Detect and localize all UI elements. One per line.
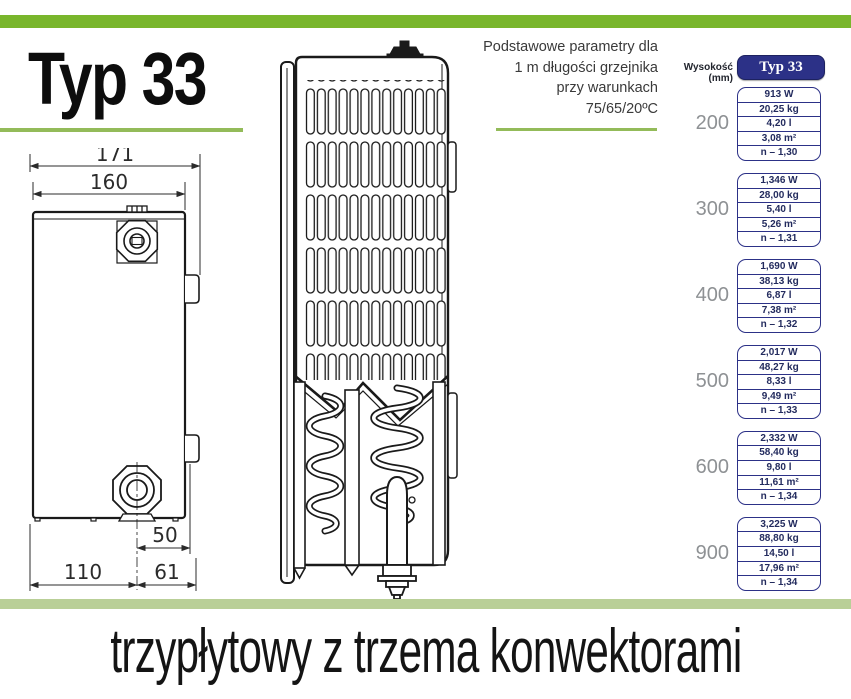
spec-cell: 4,20 l (738, 117, 820, 132)
group-box: 1,690 W38,13 kg6,87 l7,38 m²n – 1,32 (737, 259, 821, 333)
table-header-pill: Typ 33 (737, 55, 825, 80)
spec-cell: 58,40 kg (738, 446, 820, 461)
table-groups: 200 913 W20,25 kg4,20 l3,08 m²n – 1,30 3… (671, 87, 841, 591)
table-group: 300 1,346 W28,00 kg5,40 l5,26 m²n – 1,31 (671, 173, 841, 247)
spec-cell: 913 W (738, 88, 820, 103)
dim-label-160: 160 (90, 170, 128, 194)
spec-cell: 1,690 W (738, 260, 820, 275)
bracket-bottom (185, 435, 199, 462)
side-strip-panel (281, 62, 294, 583)
table-group: 500 2,017 W48,27 kg8,33 l9,49 m²n – 1,33 (671, 345, 841, 419)
title-underline (0, 128, 243, 132)
table-group: 600 2,332 W58,40 kg9,80 l11,61 m²n – 1,3… (671, 431, 841, 505)
front-view-drawing (270, 30, 484, 602)
height-value: 300 (671, 173, 737, 247)
radiator-side-body (33, 206, 199, 521)
group-box: 1,346 W28,00 kg5,40 l5,26 m²n – 1,31 (737, 173, 821, 247)
spec-cell: 9,49 m² (738, 390, 820, 405)
spec-cell: 48,27 kg (738, 361, 820, 376)
height-value: 400 (671, 259, 737, 333)
group-box: 3,225 W88,80 kg14,50 l17,96 m²n – 1,34 (737, 517, 821, 591)
spec-cell: 20,25 kg (738, 103, 820, 118)
dim-label-110: 110 (64, 560, 102, 584)
air-vent-icon (127, 206, 147, 212)
table-group: 900 3,225 W88,80 kg14,50 l17,96 m²n – 1,… (671, 517, 841, 591)
spec-cell: 88,80 kg (738, 532, 820, 547)
group-box: 2,332 W58,40 kg9,80 l11,61 m²n – 1,34 (737, 431, 821, 505)
spec-cell: 2,332 W (738, 432, 820, 447)
spec-cell: n – 1,33 (738, 404, 820, 418)
spec-cell: n – 1,34 (738, 576, 820, 590)
spec-cell: 28,00 kg (738, 189, 820, 204)
group-box: 913 W20,25 kg4,20 l3,08 m²n – 1,30 (737, 87, 821, 161)
top-valve-icon (117, 221, 158, 263)
datasheet-page: Typ 33 Podstawowe parametry dla 1 m dług… (0, 0, 851, 699)
note-underline (496, 128, 657, 131)
bottom-drain-valve-icon (378, 565, 416, 599)
bottom-caption: trzypłytowy z trzema konwektorami (110, 616, 741, 687)
dim-label-61: 61 (154, 560, 179, 584)
spec-cell: 7,38 m² (738, 304, 820, 319)
spec-cell: n – 1,32 (738, 318, 820, 332)
table-group: 200 913 W20,25 kg4,20 l3,08 m²n – 1,30 (671, 87, 841, 161)
spec-cell: n – 1,31 (738, 232, 820, 246)
table-group: 400 1,690 W38,13 kg6,87 l7,38 m²n – 1,32 (671, 259, 841, 333)
group-box: 2,017 W48,27 kg8,33 l9,49 m²n – 1,33 (737, 345, 821, 419)
spec-cell: 8,33 l (738, 375, 820, 390)
front-top-valve-icon (387, 41, 423, 57)
spec-cell: 11,61 m² (738, 476, 820, 491)
spec-cell: 6,87 l (738, 289, 820, 304)
spec-cell: 2,017 W (738, 346, 820, 361)
dim-label-50: 50 (152, 523, 177, 547)
spec-cell: n – 1,34 (738, 490, 820, 504)
height-value: 600 (671, 431, 737, 505)
top-accent-bar (0, 15, 851, 28)
front-bracket-tabs (448, 142, 457, 478)
side-view-drawing: 171 160 (15, 148, 225, 596)
dim-label-171: 171 (96, 148, 134, 166)
height-value: 900 (671, 517, 737, 591)
spec-cell: 17,96 m² (738, 562, 820, 577)
spec-cell: 14,50 l (738, 547, 820, 562)
spec-table: Wysokość (mm) Typ 33 200 913 W20,25 kg4,… (671, 55, 841, 603)
spec-cell: 3,225 W (738, 518, 820, 533)
page-title: Typ 33 (28, 36, 206, 121)
spec-cell: 9,80 l (738, 461, 820, 476)
bracket-top (185, 275, 199, 303)
grille-slots (305, 80, 447, 380)
spec-cell: 1,346 W (738, 174, 820, 189)
spec-cell: n – 1,30 (738, 146, 820, 160)
height-value: 200 (671, 87, 737, 161)
height-column-label: Wysokość (mm) (671, 55, 737, 84)
spec-cell: 3,08 m² (738, 132, 820, 147)
spec-cell: 5,26 m² (738, 218, 820, 233)
spec-cell: 5,40 l (738, 203, 820, 218)
height-value: 500 (671, 345, 737, 419)
spec-cell: 38,13 kg (738, 275, 820, 290)
bottom-accent-bar (0, 599, 851, 609)
table-header: Wysokość (mm) Typ 33 (671, 55, 841, 84)
